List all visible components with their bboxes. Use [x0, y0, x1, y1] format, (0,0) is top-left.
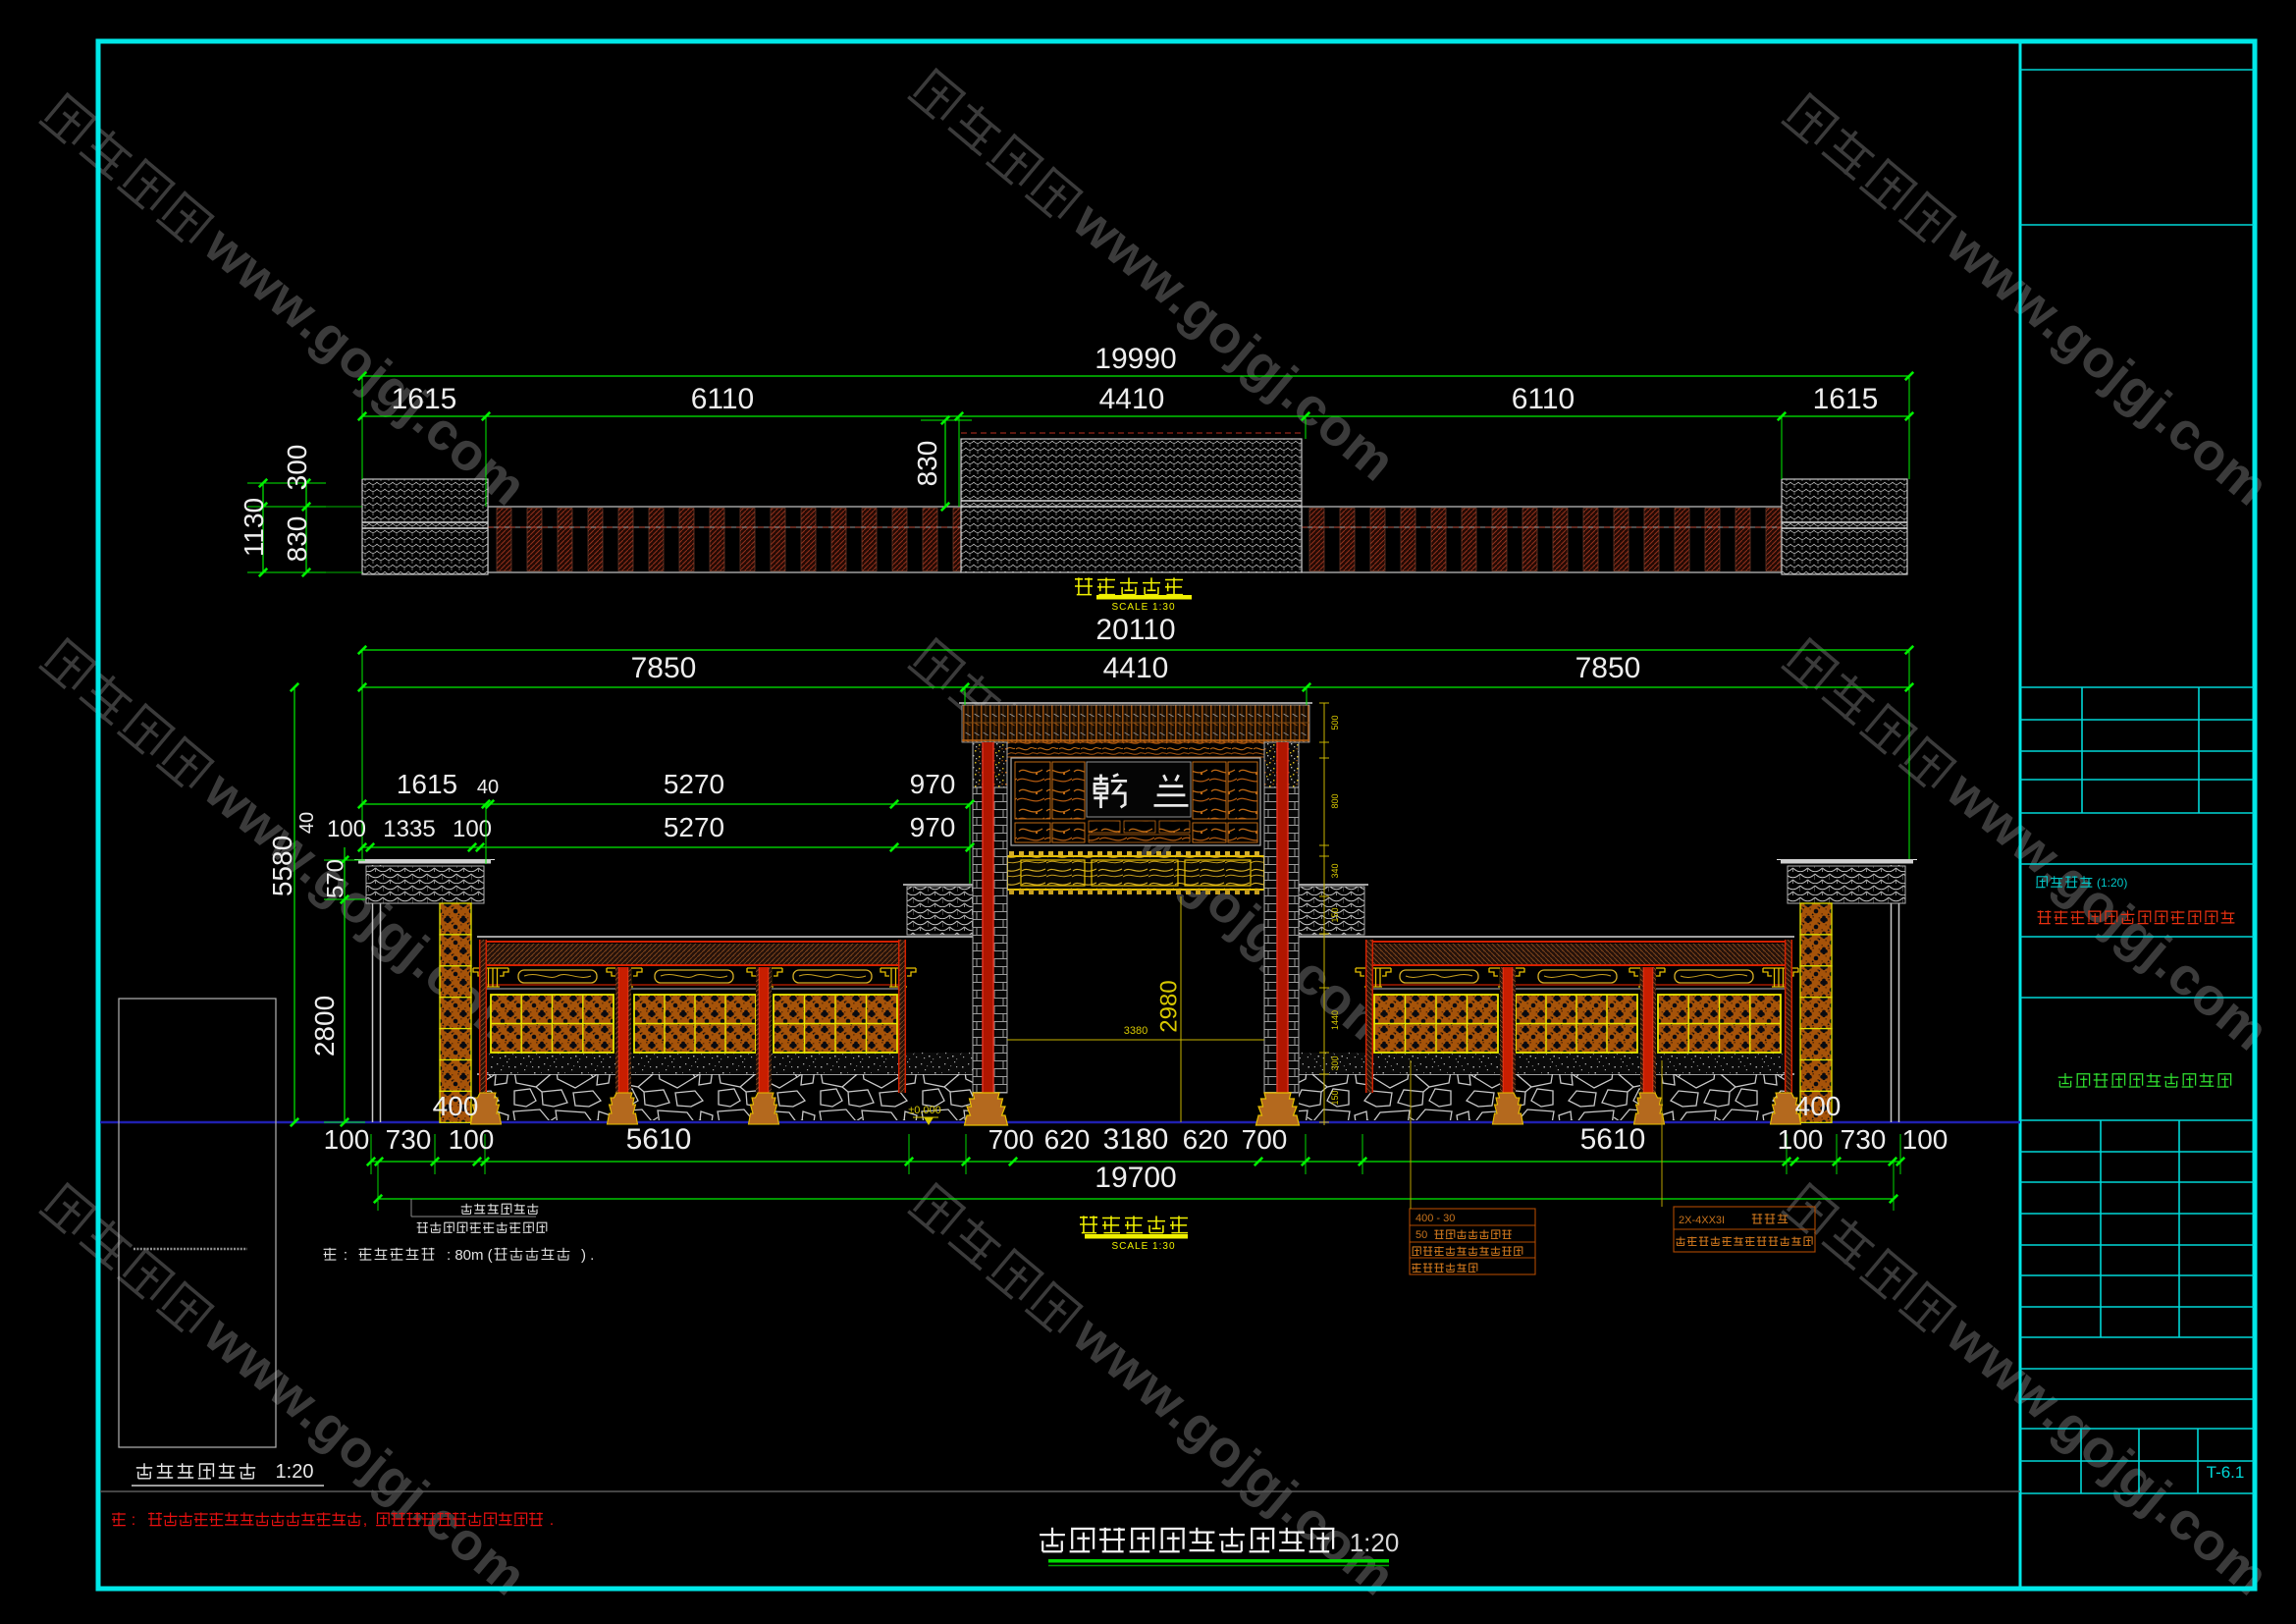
svg-text:3180: 3180 [1103, 1123, 1169, 1156]
svg-text:19990: 19990 [1095, 343, 1176, 375]
svg-text:T-6.1: T-6.1 [2207, 1463, 2245, 1482]
svg-text:4410: 4410 [1103, 652, 1169, 684]
svg-text:1615: 1615 [392, 383, 457, 415]
svg-text::: : [132, 1512, 135, 1529]
svg-text:830: 830 [912, 441, 942, 487]
svg-text:340: 340 [1330, 863, 1340, 878]
svg-text:150: 150 [1330, 907, 1340, 922]
svg-text:,: , [363, 1512, 367, 1529]
svg-text:6110: 6110 [1512, 383, 1575, 415]
svg-text:730: 730 [1841, 1124, 1887, 1155]
svg-text:1:20: 1:20 [276, 1461, 314, 1483]
svg-text:5270: 5270 [664, 769, 724, 799]
svg-text:7850: 7850 [1575, 652, 1641, 684]
svg-text:: 80m (: : 80m ( [447, 1247, 493, 1264]
svg-text:19700: 19700 [1095, 1162, 1176, 1194]
svg-text:100: 100 [1778, 1124, 1824, 1155]
svg-text:1615: 1615 [1813, 383, 1879, 415]
svg-text:100: 100 [324, 1124, 370, 1155]
svg-text:970: 970 [910, 769, 956, 799]
svg-text:1:20: 1:20 [1350, 1528, 1400, 1557]
svg-text:.: . [550, 1512, 554, 1529]
svg-text:970: 970 [910, 812, 956, 842]
svg-text:400 - 30: 400 - 30 [1415, 1213, 1455, 1224]
svg-text:20110: 20110 [1095, 614, 1175, 646]
svg-text:620: 620 [1183, 1124, 1229, 1155]
svg-text:5270: 5270 [664, 812, 724, 842]
svg-text:2800: 2800 [309, 996, 340, 1056]
svg-text:1335: 1335 [383, 816, 435, 842]
svg-text:400: 400 [1795, 1091, 1842, 1121]
svg-text:5580: 5580 [267, 836, 297, 896]
svg-text:SCALE 1:30: SCALE 1:30 [1111, 602, 1175, 613]
svg-text:100: 100 [1902, 1124, 1949, 1155]
svg-text:300: 300 [282, 445, 312, 491]
svg-text:50: 50 [1415, 1229, 1427, 1241]
svg-text:6110: 6110 [691, 383, 755, 415]
svg-text:40: 40 [477, 777, 499, 798]
svg-text:±0.000: ±0.000 [908, 1105, 941, 1116]
svg-text:150: 150 [1330, 1090, 1340, 1105]
svg-text:7850: 7850 [631, 652, 697, 684]
svg-text:620: 620 [1044, 1124, 1091, 1155]
svg-text:40: 40 [296, 812, 318, 834]
svg-text:5610: 5610 [626, 1123, 692, 1156]
svg-text:100: 100 [327, 816, 366, 842]
svg-text:300: 300 [1330, 1056, 1340, 1070]
svg-text:570: 570 [322, 859, 348, 898]
svg-text:5610: 5610 [1580, 1123, 1646, 1156]
svg-text:1440: 1440 [1330, 1010, 1340, 1030]
svg-text::: : [344, 1247, 347, 1264]
svg-text:2980: 2980 [1155, 980, 1182, 1032]
svg-text:830: 830 [282, 516, 312, 563]
svg-text:(1:20): (1:20) [2097, 876, 2127, 890]
svg-text:700: 700 [988, 1124, 1035, 1155]
svg-text:100: 100 [449, 1124, 495, 1155]
svg-text:4410: 4410 [1099, 383, 1165, 415]
svg-text:800: 800 [1330, 793, 1340, 808]
svg-text:730: 730 [386, 1124, 432, 1155]
svg-text:SCALE 1:30: SCALE 1:30 [1111, 1241, 1175, 1252]
svg-text:400: 400 [433, 1091, 479, 1121]
svg-text:1130: 1130 [239, 498, 269, 557]
svg-text:2X-4XX3I: 2X-4XX3I [1679, 1215, 1725, 1226]
svg-text:500: 500 [1330, 715, 1340, 730]
svg-text:700: 700 [1242, 1124, 1288, 1155]
svg-text:1615: 1615 [397, 769, 457, 799]
svg-text:) .: ) . [581, 1247, 594, 1264]
svg-text:3380: 3380 [1124, 1025, 1148, 1037]
